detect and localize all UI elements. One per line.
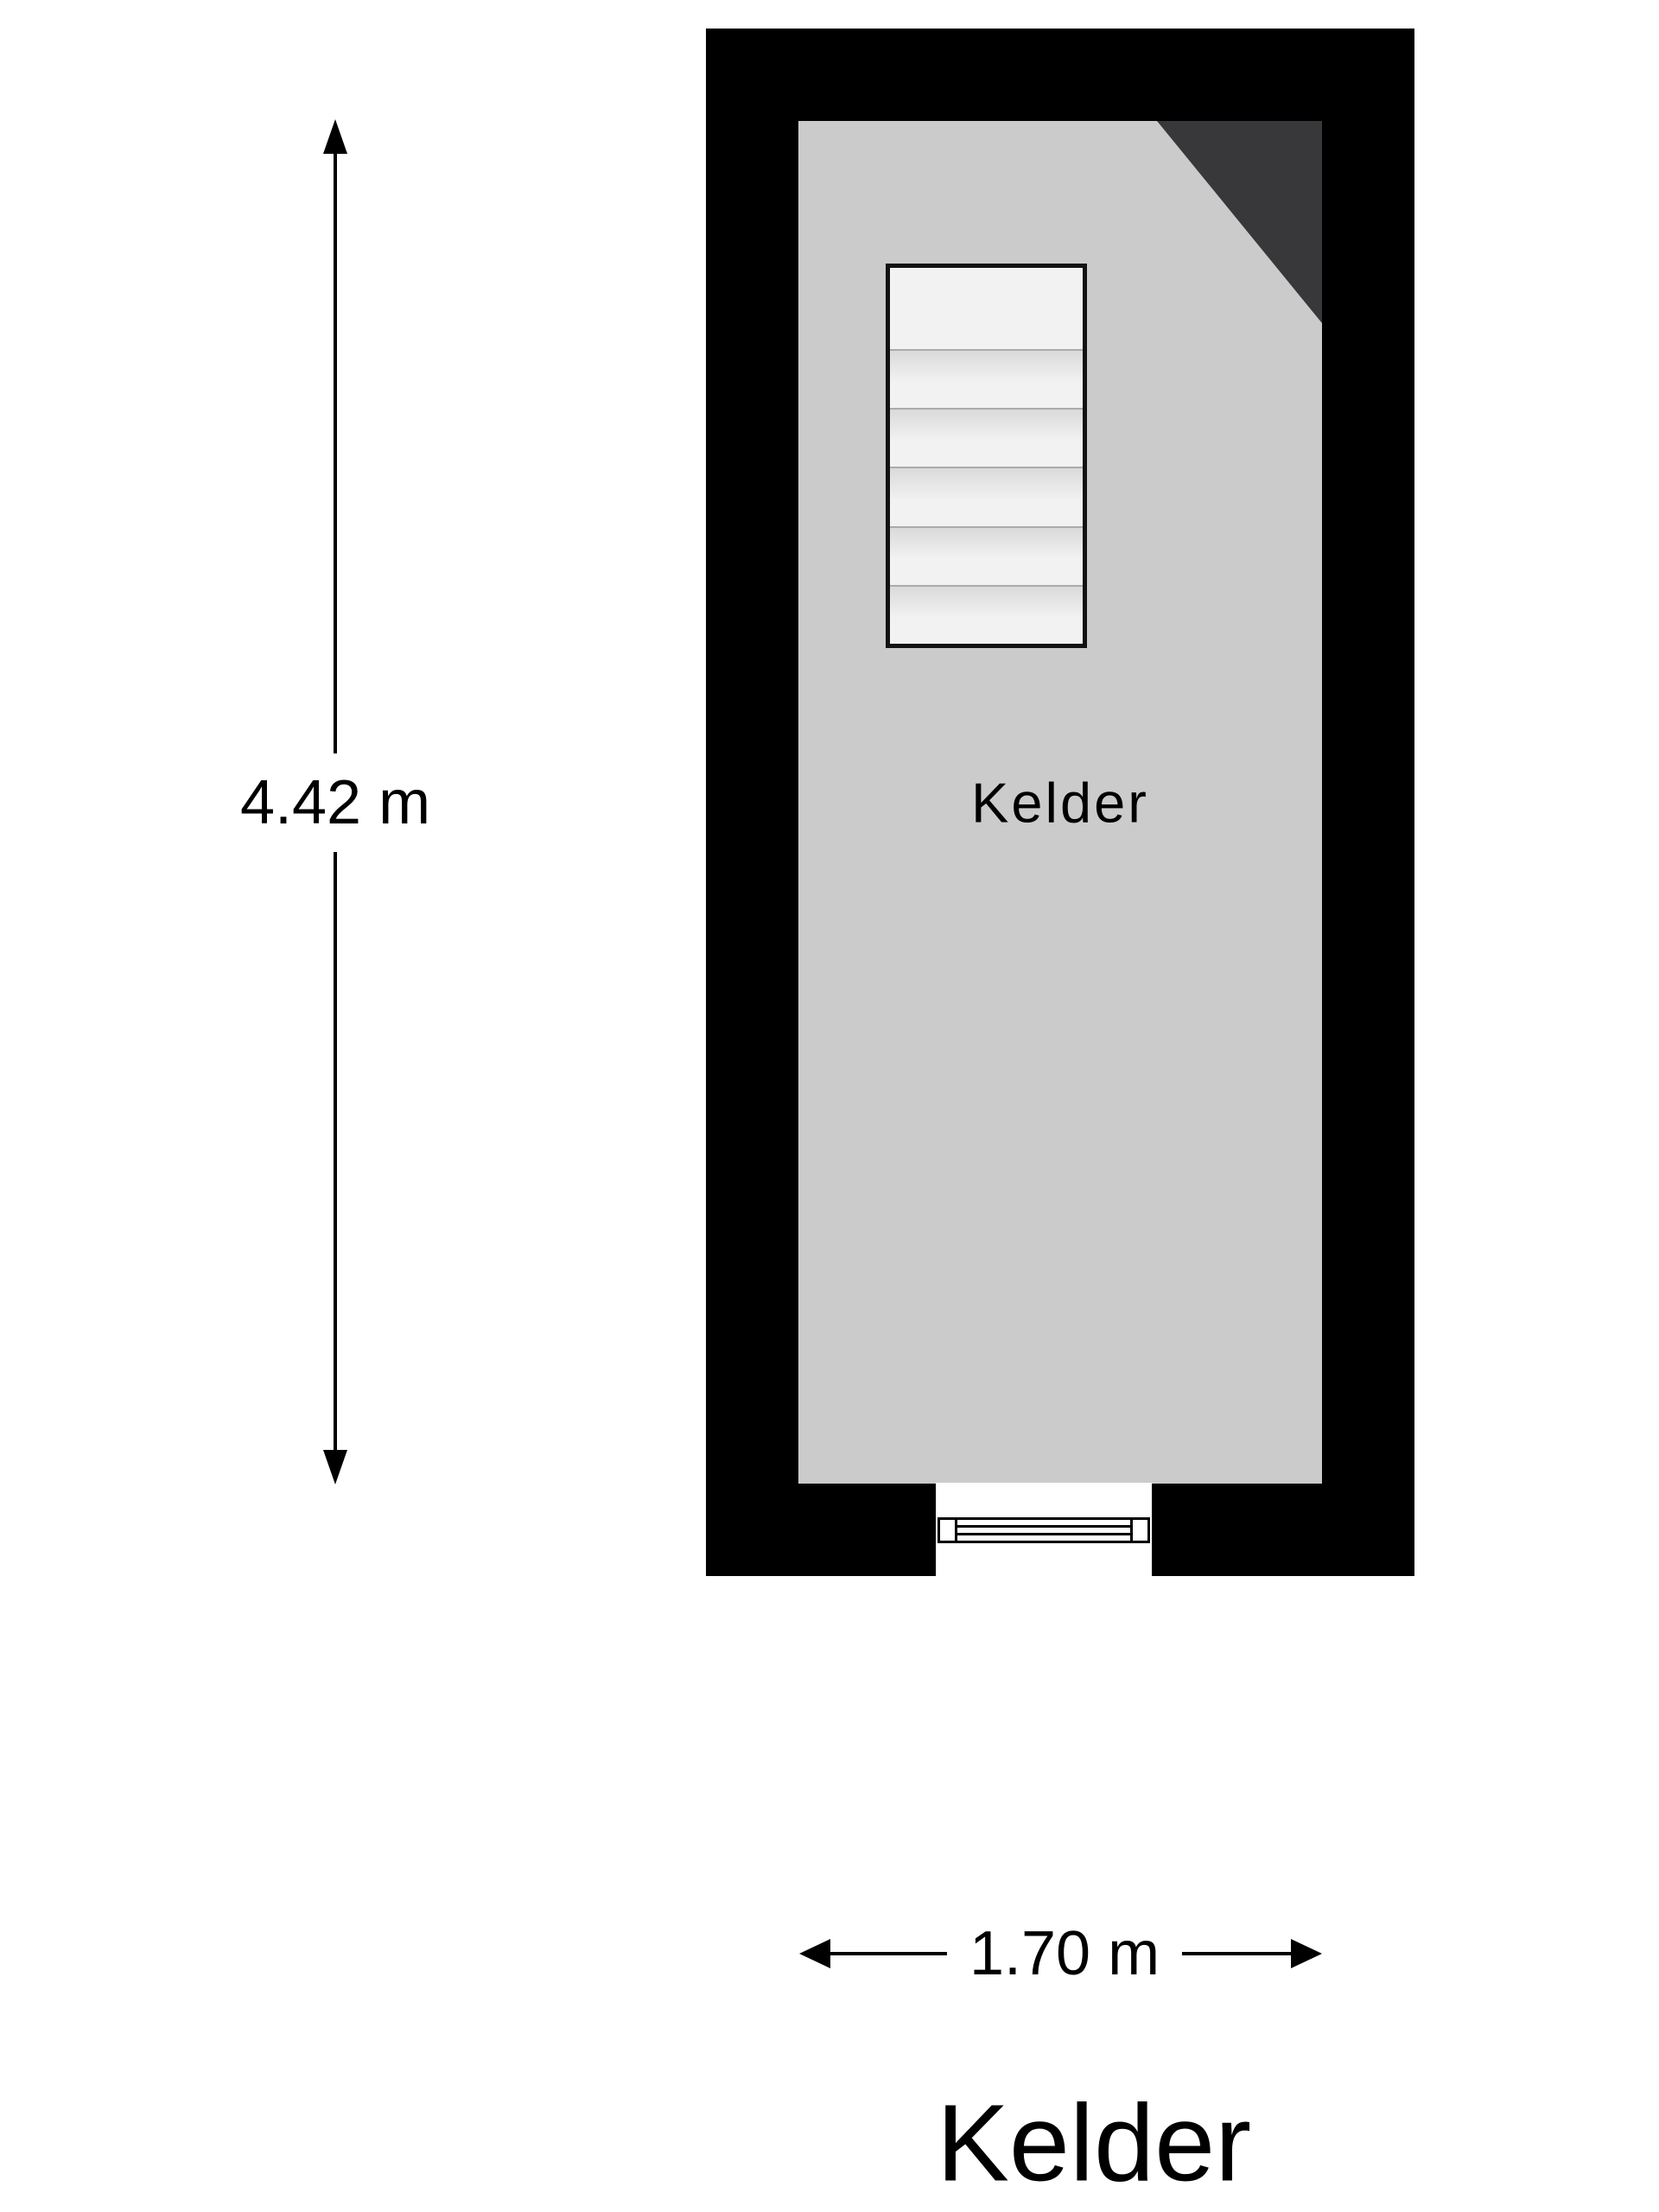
staircase xyxy=(886,264,1087,648)
height-dimension-label: 4.42 m xyxy=(233,753,437,852)
stair-tread xyxy=(890,408,1083,467)
window-pane xyxy=(957,1525,1130,1533)
stair-tread xyxy=(890,467,1083,525)
sloped-corner-shape xyxy=(1157,121,1322,323)
dimension-arrow-down-icon xyxy=(323,1450,347,1484)
window-frame-right xyxy=(1130,1520,1147,1541)
window-symbol xyxy=(938,1517,1150,1543)
window-frame-left xyxy=(940,1520,957,1541)
window-glazing xyxy=(957,1520,1130,1541)
window-pane xyxy=(957,1533,1130,1541)
stair-tread xyxy=(890,526,1083,585)
stair-tread xyxy=(890,585,1083,644)
room-kelder: Kelder xyxy=(798,121,1322,1484)
floor-title: Kelder xyxy=(937,2081,1251,2206)
width-dimension-label: 1.70 m xyxy=(947,1915,1182,1993)
wall-opening xyxy=(936,1483,1152,1576)
stair-tread xyxy=(890,349,1083,408)
room-label: Kelder xyxy=(971,770,1149,835)
floorplan-page: 4.42 m Kelder 1.70 m Kelder xyxy=(0,0,1659,2212)
dimension-arrow-right-icon xyxy=(1291,1939,1322,1968)
floorplan-walls: Kelder xyxy=(706,29,1414,1576)
stair-tread xyxy=(890,268,1083,349)
